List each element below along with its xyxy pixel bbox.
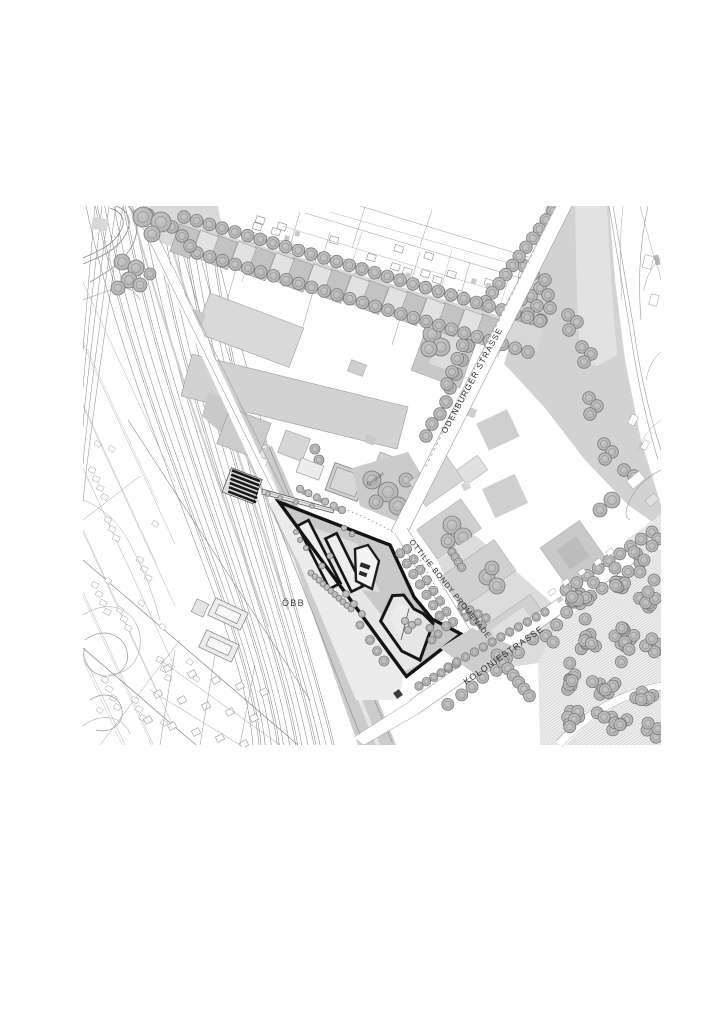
svg-text:ÖBB: ÖBB	[282, 598, 305, 608]
